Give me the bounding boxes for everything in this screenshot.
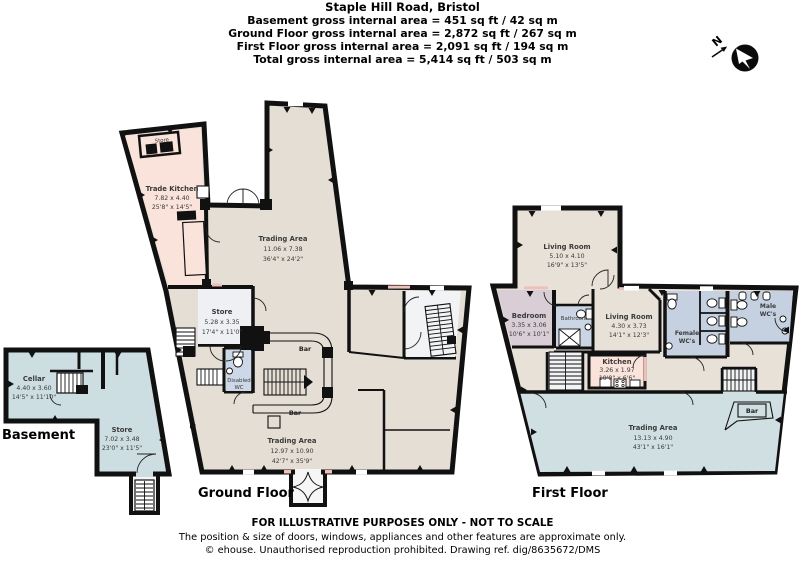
svg-text:Store: Store — [212, 308, 233, 316]
svg-text:10'8" x 6'6": 10'8" x 6'6" — [599, 375, 636, 382]
svg-text:13.13 x 4.90: 13.13 x 4.90 — [633, 435, 672, 442]
svg-text:Trading Area: Trading Area — [268, 437, 317, 445]
room-label-bedroom: Bedroom 3.35 x 3.06 10'6" x 10'1" — [509, 312, 549, 338]
room-label-trading-upper: Trading Area 11.06 x 7.38 36'4" x 24'2" — [259, 235, 308, 263]
svg-text:3.26 x 1.97: 3.26 x 1.97 — [599, 367, 634, 374]
room-label-living-top: Living Room 5.10 x 4.10 16'9" x 13'5" — [543, 243, 590, 269]
basement-footprint — [6, 350, 169, 474]
approximation-note: The position & size of doors, windows, a… — [0, 531, 805, 544]
floorplan-page: Staple Hill Road, Bristol Basement gross… — [0, 0, 805, 564]
svg-text:5.10 x 4.10: 5.10 x 4.10 — [549, 253, 584, 260]
ground-floor-label: Ground Floor — [198, 486, 295, 501]
svg-text:42'7" x 35'9": 42'7" x 35'9" — [272, 458, 312, 465]
bar-label-lower: Bar — [289, 409, 302, 417]
svg-text:11.06 x 7.38: 11.06 x 7.38 — [263, 246, 302, 253]
svg-text:Trade Kitchen: Trade Kitchen — [146, 185, 199, 193]
svg-text:23'0" x 11'5": 23'0" x 11'5" — [102, 445, 142, 452]
basin-icon — [585, 324, 591, 330]
svg-text:4.30 x 3.73: 4.30 x 3.73 — [611, 323, 646, 330]
bar-label-upper: Bar — [299, 345, 312, 353]
svg-text:Cellar: Cellar — [23, 375, 46, 383]
svg-text:43'1" x 16'1": 43'1" x 16'1" — [633, 444, 673, 451]
basement-opening — [136, 471, 153, 477]
room-label-first-trading: Trading Area 13.13 x 4.90 43'1" x 16'1" — [629, 424, 678, 451]
svg-text:12.97 x 10.90: 12.97 x 10.90 — [270, 448, 313, 455]
footer: FOR ILLUSTRATIVE PURPOSES ONLY - NOT TO … — [0, 517, 805, 557]
svg-text:14'1" x 12'3": 14'1" x 12'3" — [609, 332, 649, 339]
basin-icon — [227, 368, 233, 374]
svg-text:36'4" x 24'2": 36'4" x 24'2" — [263, 256, 303, 263]
room-label-first-kitchen: Kitchen 3.26 x 1.97 10'8" x 6'6" — [599, 358, 636, 382]
compass-north-label: N — [710, 33, 725, 49]
cellar-staircase-icon — [57, 373, 88, 394]
room-ground-store-top: Store — [139, 132, 180, 157]
pillar-block-2 — [322, 387, 333, 398]
basement-floor-label: Basement — [2, 428, 75, 443]
svg-text:Female: Female — [675, 330, 699, 337]
room-label-living-mid: Living Room 4.30 x 3.73 14'1" x 12'3" — [605, 313, 652, 339]
first-floor-label: First Floor — [532, 486, 608, 501]
room-label-male-wcs: Male WC's — [760, 303, 777, 318]
svg-text:WC's: WC's — [679, 338, 696, 345]
svg-text:WC's: WC's — [760, 311, 777, 318]
floorplan-svg: N — [0, 0, 805, 564]
ground-staircase-left2-icon — [197, 369, 223, 385]
basin-icon — [780, 316, 786, 322]
svg-text:Trading Area: Trading Area — [259, 235, 308, 243]
svg-text:5.28 x 3.35: 5.28 x 3.35 — [204, 319, 239, 326]
svg-text:Bedroom: Bedroom — [512, 312, 546, 320]
disclaimer-line: FOR ILLUSTRATIVE PURPOSES ONLY - NOT TO … — [0, 517, 805, 531]
bar-end-block — [243, 330, 252, 341]
first-floor-plan: Living Room 5.10 x 4.10 16'9" x 13'5" Be… — [493, 206, 796, 501]
room-label-trading-main: Trading Area 12.97 x 10.90 42'7" x 35'9" — [268, 437, 317, 465]
basin-icon — [666, 343, 672, 349]
svg-text:WC: WC — [234, 385, 243, 391]
svg-text:10'6" x 10'1": 10'6" x 10'1" — [509, 331, 549, 338]
svg-text:Disabled: Disabled — [227, 378, 250, 384]
svg-text:Living Room: Living Room — [605, 313, 652, 321]
svg-text:4.40 x 3.60: 4.40 x 3.60 — [16, 385, 51, 392]
svg-text:25'8" x 14'5": 25'8" x 14'5" — [152, 204, 192, 211]
svg-text:17'4" x 11'0": 17'4" x 11'0" — [202, 329, 242, 336]
room-label-bathroom: Bathroom — [561, 316, 587, 322]
first-staircase-left-icon — [549, 352, 582, 390]
svg-text:14'5" x 11'10": 14'5" x 11'10" — [12, 394, 56, 401]
compass-icon: N — [710, 33, 759, 71]
svg-text:3.35 x 3.06: 3.35 x 3.06 — [511, 322, 546, 329]
svg-text:Kitchen: Kitchen — [602, 358, 631, 366]
ground-staircase-left-icon — [176, 328, 195, 357]
basement-plan: Cellar 4.40 x 3.60 14'5" x 11'10" Store … — [2, 350, 169, 513]
urinal-icon — [739, 292, 746, 300]
basement-staircase-icon — [135, 480, 154, 511]
first-staircase-right-icon — [723, 369, 755, 391]
bar-label-first: Bar — [746, 407, 759, 415]
ground-floor-plan: Store — [122, 101, 469, 505]
pillar-block-1 — [322, 347, 333, 358]
svg-text:Trading Area: Trading Area — [629, 424, 678, 432]
svg-text:7.02 x 3.48: 7.02 x 3.48 — [104, 436, 139, 443]
urinal-icon — [763, 292, 770, 300]
svg-text:Male: Male — [760, 303, 776, 310]
svg-text:Store: Store — [112, 426, 133, 434]
ground-staircase-center-icon — [264, 369, 313, 395]
ground-staircase-right-icon — [406, 291, 461, 357]
svg-text:16'9" x 13'5": 16'9" x 13'5" — [547, 262, 587, 269]
svg-text:7.82 x 4.40: 7.82 x 4.40 — [154, 195, 189, 202]
copyright-line: © ehouse. Unauthorised reproduction proh… — [0, 544, 805, 557]
svg-text:Living Room: Living Room — [543, 243, 590, 251]
